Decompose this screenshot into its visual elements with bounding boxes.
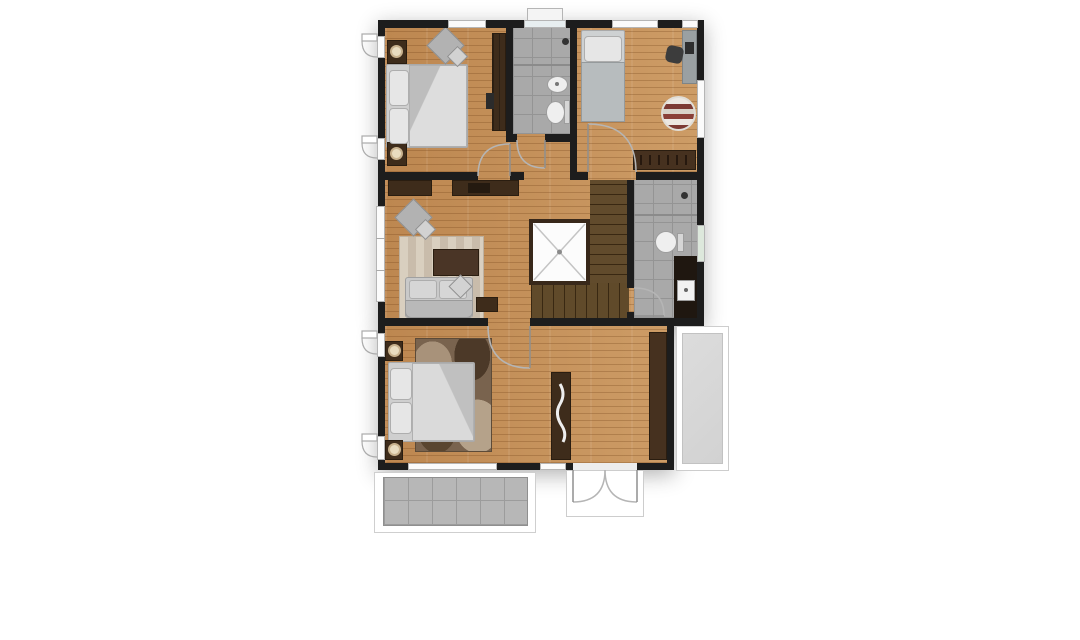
window-top-bathroom (524, 20, 566, 28)
wardrobe (492, 33, 506, 131)
shower-divider (634, 214, 697, 216)
pillow (390, 402, 412, 434)
wall-mid-a (378, 172, 478, 180)
window-left-3 (377, 333, 385, 357)
wall-mid-b (510, 172, 524, 180)
lamp (388, 443, 401, 456)
window-living (376, 206, 385, 302)
door-opening-bottom (573, 463, 637, 470)
laptop (685, 42, 694, 54)
wall-bath-mid-left-stub (627, 312, 634, 318)
window-bottom-short (540, 463, 566, 470)
window-right-bathroom (697, 225, 705, 262)
window-left-4 (377, 436, 385, 460)
round-striped-rug (661, 96, 696, 131)
window-left-1 (377, 36, 385, 58)
sink-drain (555, 82, 559, 86)
window-left-2 (377, 138, 385, 160)
wall-mid-c (577, 172, 588, 180)
pillow (584, 36, 622, 62)
wall-right-lower (667, 318, 674, 470)
desk (682, 30, 697, 84)
window-right-bedroom2 (697, 80, 705, 138)
shower-divider (513, 64, 570, 66)
wall-tv (486, 93, 494, 109)
window-top-bedroom2 (612, 20, 658, 28)
pillow (389, 108, 409, 144)
lamp (390, 45, 403, 58)
toilet-tank (677, 233, 684, 252)
side-table (476, 297, 498, 312)
shower-head (681, 192, 688, 199)
pillow (389, 70, 409, 106)
toilet-bowl (655, 231, 677, 253)
stair-flight (590, 180, 629, 285)
pillow (390, 368, 412, 400)
wall-low-b (530, 318, 704, 326)
sofa-cushion (409, 280, 437, 299)
wall-bath-top-left (506, 20, 513, 142)
lamp (390, 147, 403, 160)
exterior-door-threshold (566, 470, 644, 517)
coffee-table (433, 249, 479, 276)
duvet (409, 65, 467, 147)
casement-windows (362, 34, 377, 457)
floor-plan-canvas (0, 0, 1080, 640)
wall-bath-mid-left (627, 180, 634, 288)
tv (468, 183, 490, 193)
window-top-left (448, 20, 486, 28)
window-mullion (376, 238, 385, 239)
sink-drain (684, 288, 688, 292)
toilet-bowl (546, 101, 565, 124)
wall-bath-top-bottom-a (506, 134, 517, 142)
decor-console (551, 372, 571, 460)
blanket (581, 62, 625, 122)
wall-low-a (378, 318, 488, 326)
window-top-corner (682, 20, 698, 28)
balcony-floor (682, 333, 723, 464)
lamp (388, 344, 401, 357)
wall-bath-top-bottom-b (545, 134, 577, 142)
sofa-back (405, 300, 473, 318)
duvet (412, 363, 474, 441)
shower-head (562, 38, 569, 45)
window-mullion (376, 270, 385, 271)
stair-landing (531, 283, 629, 318)
dresser-handles (640, 155, 688, 165)
tv-console-left (388, 180, 432, 196)
master-wardrobe (649, 332, 667, 460)
wall-mid-d (636, 172, 704, 180)
wall-bath-top-right (570, 20, 577, 180)
window-bottom-long (408, 463, 497, 470)
terrace-tiles (383, 477, 528, 526)
